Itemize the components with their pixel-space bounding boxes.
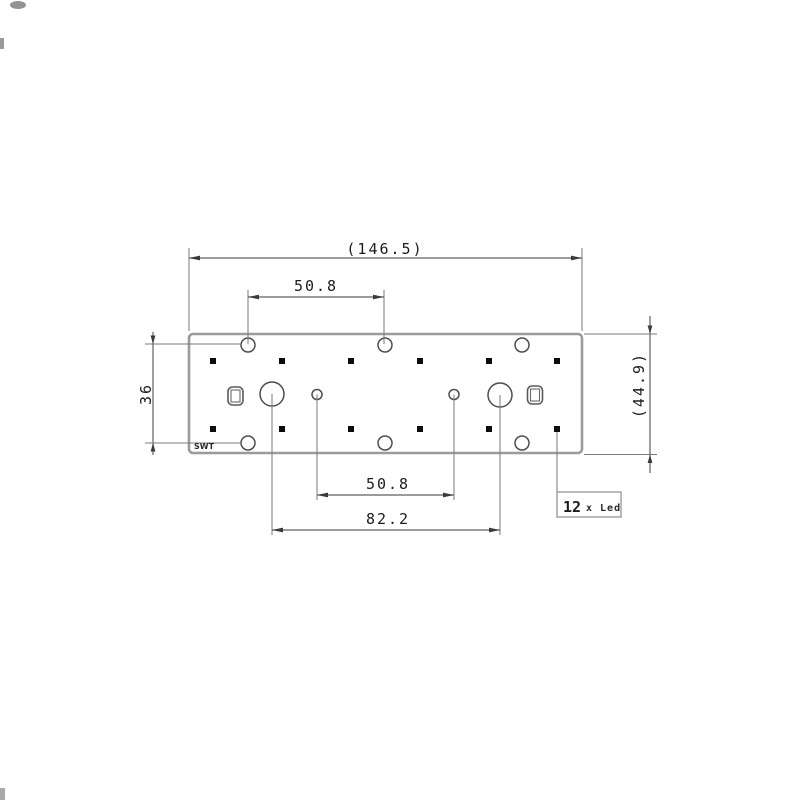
callout-led-count: 12 — [563, 498, 581, 516]
callout-led-suffix: x Led — [586, 503, 621, 514]
dim-value-bottom-large-hole-spacing: 82.2 — [366, 510, 410, 528]
led-icon — [279, 426, 285, 432]
led-icon — [554, 426, 560, 432]
led-icon — [417, 358, 423, 364]
dim-bottom-large-hole-spacing: 82.2 — [272, 394, 500, 535]
led-icon — [486, 426, 492, 432]
led-icon — [554, 358, 560, 364]
arrowhead-left — [272, 528, 283, 533]
arrowhead-right — [571, 256, 582, 261]
hole-top-middle — [378, 338, 392, 352]
smudge-top-left — [10, 1, 26, 9]
led-icon — [279, 358, 285, 364]
arrowhead-left — [248, 295, 259, 300]
smudge-left-edge — [0, 38, 4, 49]
arrowhead-right — [443, 493, 454, 498]
dim-value-right-overall-height: (44.9) — [630, 352, 648, 418]
led-icon — [417, 426, 423, 432]
dim-value-top-hole-spacing: 50.8 — [294, 277, 338, 295]
led-icon — [210, 426, 216, 432]
arrowhead-bottom — [151, 443, 156, 452]
scan-artifacts — [0, 1, 26, 800]
dim-right-overall-height: (44.9) — [584, 316, 657, 473]
dim-value-bottom-hole-spacing: 50.8 — [366, 475, 410, 493]
hole-bottom-right — [515, 436, 529, 450]
led-icon — [348, 358, 354, 364]
arrowhead-left — [189, 256, 200, 261]
smudge-bottom-left — [0, 788, 5, 800]
led-icon — [210, 358, 216, 364]
led-icon — [348, 426, 354, 432]
hole-bottom-middle — [378, 436, 392, 450]
technical-drawing-page: (146.5) 50.8 36 (44.9) 50.8 — [0, 0, 800, 800]
arrowhead-bottom — [648, 455, 653, 464]
led-board-dimension-drawing: (146.5) 50.8 36 (44.9) 50.8 — [0, 0, 800, 800]
hole-bottom-left — [241, 436, 255, 450]
hole-top-right — [515, 338, 529, 352]
arrowhead-right — [489, 528, 500, 533]
arrowhead-top — [151, 336, 156, 345]
mounting-holes — [241, 338, 529, 450]
arrowhead-left — [317, 493, 328, 498]
board-marking-swt: SWT — [194, 442, 215, 451]
led-callout: 12 x Led — [557, 432, 621, 517]
led-icon — [486, 358, 492, 364]
dim-value-left-height: 36 — [137, 383, 155, 405]
arrowhead-top — [648, 326, 653, 335]
arrowhead-right — [373, 295, 384, 300]
dim-value-overall-width: (146.5) — [346, 240, 423, 258]
